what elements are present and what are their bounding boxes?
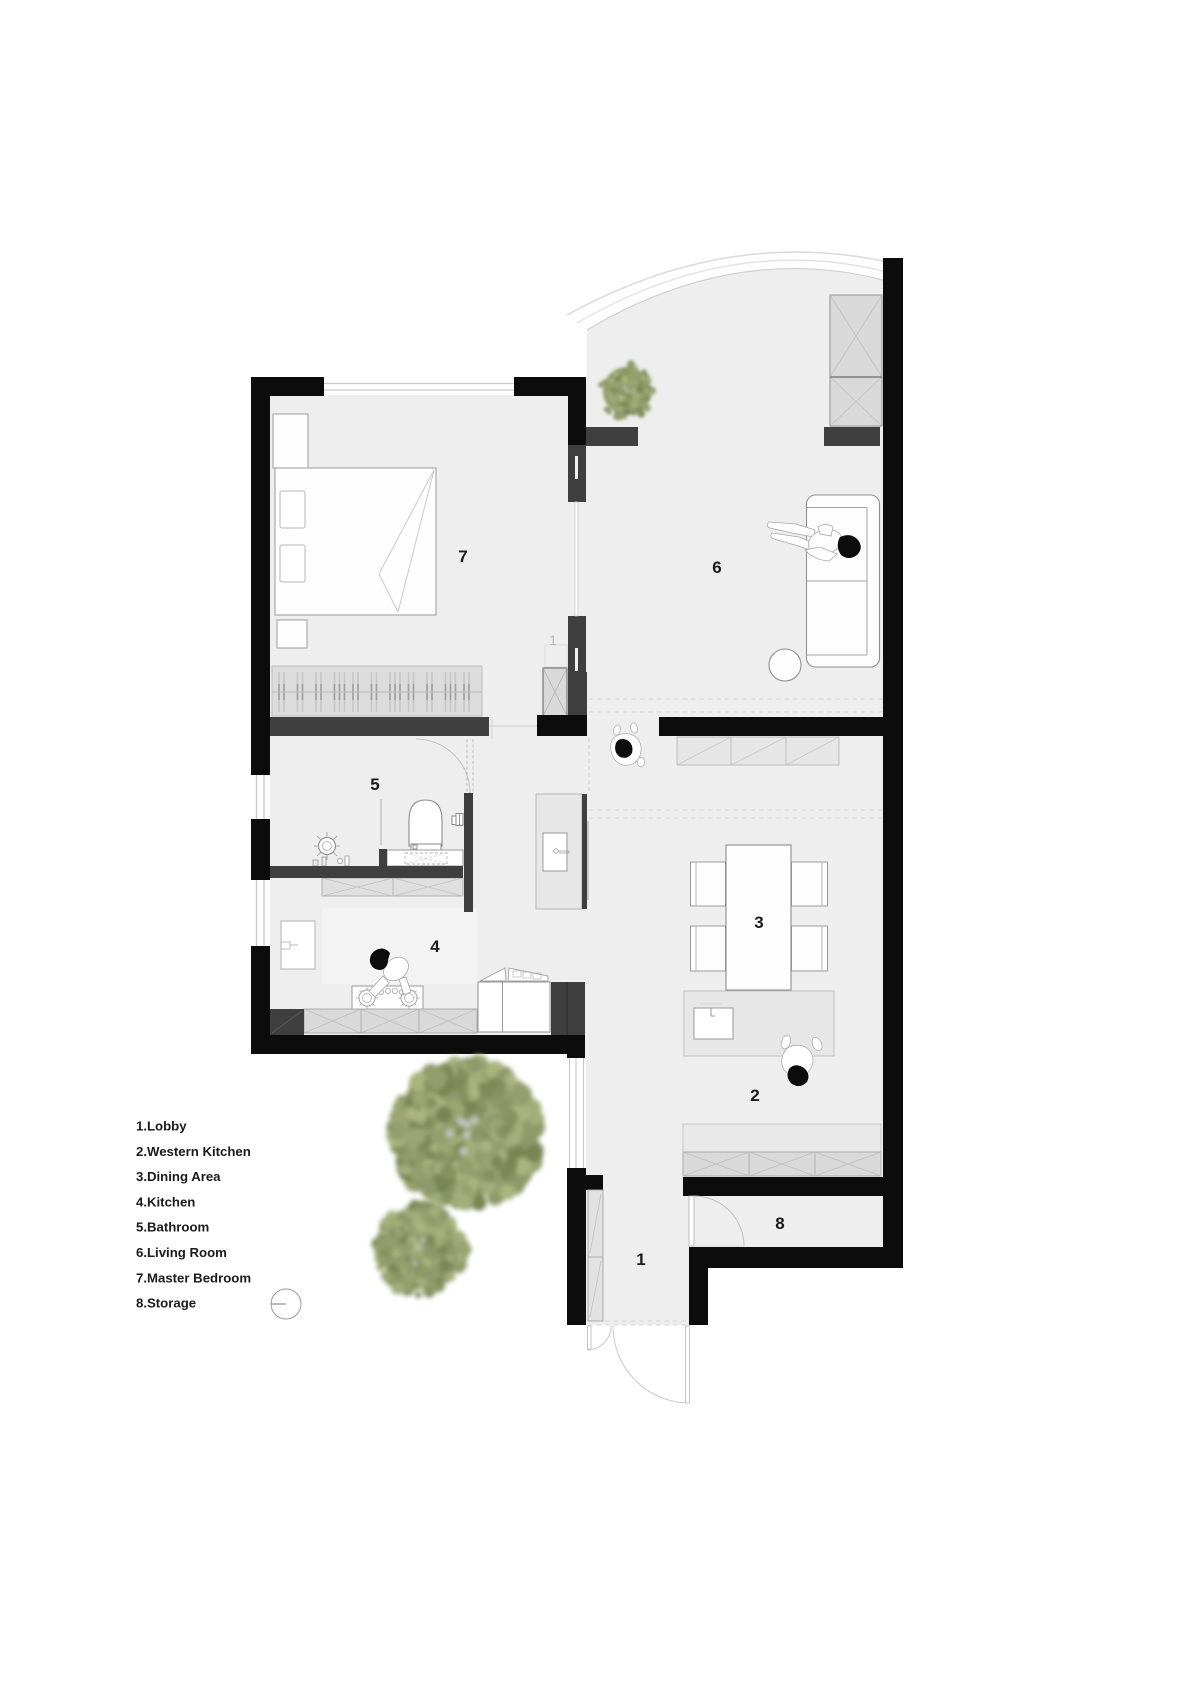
svg-text:1: 1 (549, 632, 557, 648)
svg-text:8.Storage: 8.Storage (136, 1296, 196, 1311)
svg-text:7.Master Bedroom: 7.Master Bedroom (136, 1270, 251, 1285)
svg-text:3.Dining Area: 3.Dining Area (136, 1169, 221, 1184)
svg-text:4.Kitchen: 4.Kitchen (136, 1194, 195, 1209)
svg-text:6.Living Room: 6.Living Room (136, 1245, 227, 1260)
svg-text:5: 5 (370, 775, 379, 794)
svg-text:4: 4 (430, 937, 440, 956)
svg-text:2: 2 (750, 1086, 759, 1105)
svg-text:1: 1 (636, 1250, 645, 1269)
svg-text:2.Western Kitchen: 2.Western Kitchen (136, 1144, 251, 1159)
svg-text:6: 6 (712, 558, 721, 577)
svg-text:3: 3 (754, 913, 763, 932)
svg-text:1.Lobby: 1.Lobby (136, 1119, 187, 1134)
svg-text:5.Bathroom: 5.Bathroom (136, 1220, 209, 1235)
svg-text:8: 8 (775, 1214, 784, 1233)
svg-text:7: 7 (458, 547, 467, 566)
